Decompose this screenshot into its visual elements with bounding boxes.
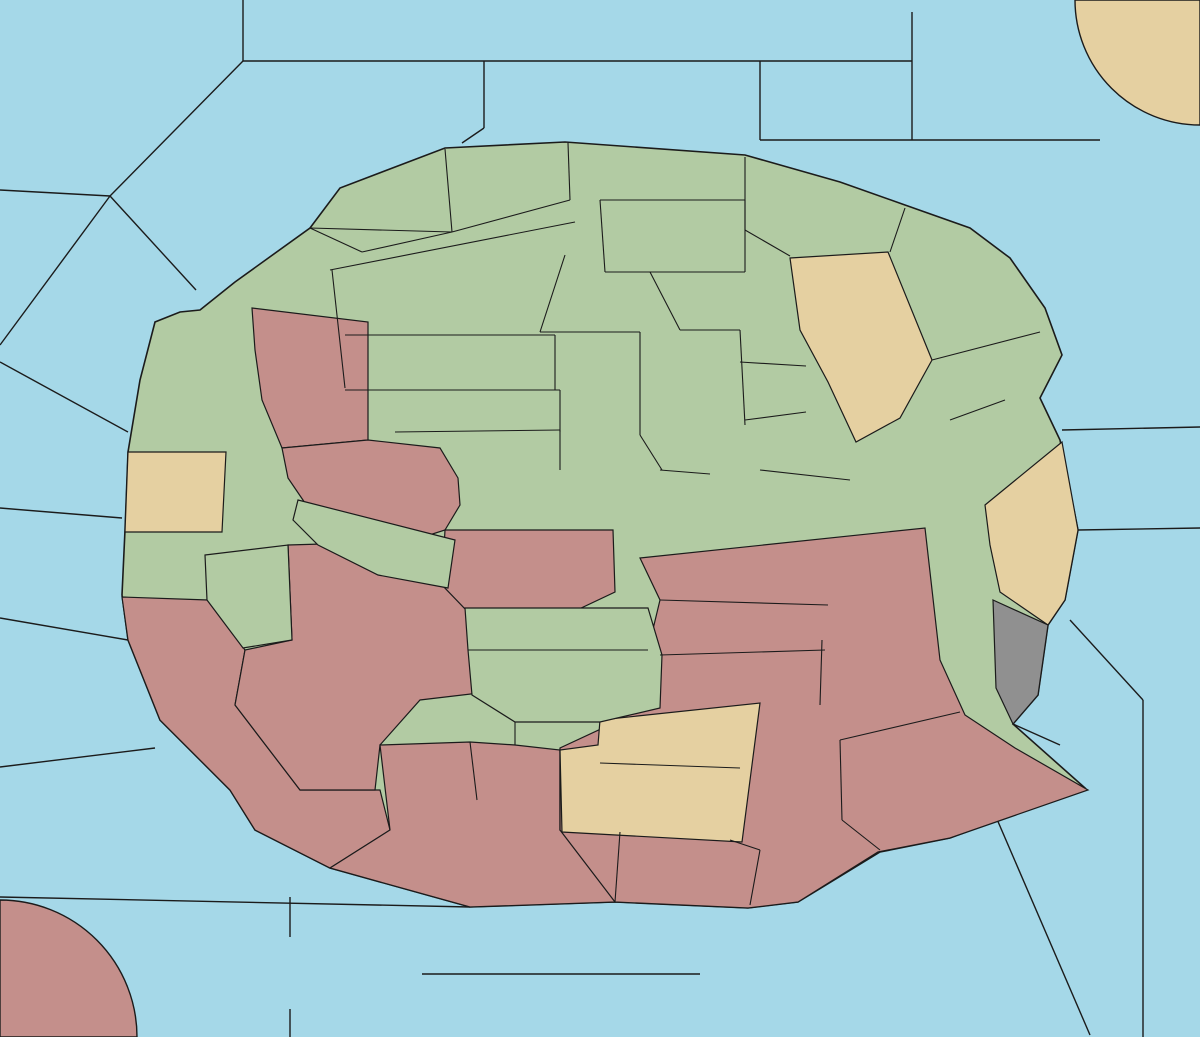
region-patch[interactable]	[465, 608, 662, 722]
game-map-stage	[0, 0, 1200, 1037]
region-patch[interactable]	[442, 530, 615, 618]
region-patch[interactable]	[125, 452, 226, 532]
diplomacy-game-map[interactable]	[0, 0, 1200, 1037]
